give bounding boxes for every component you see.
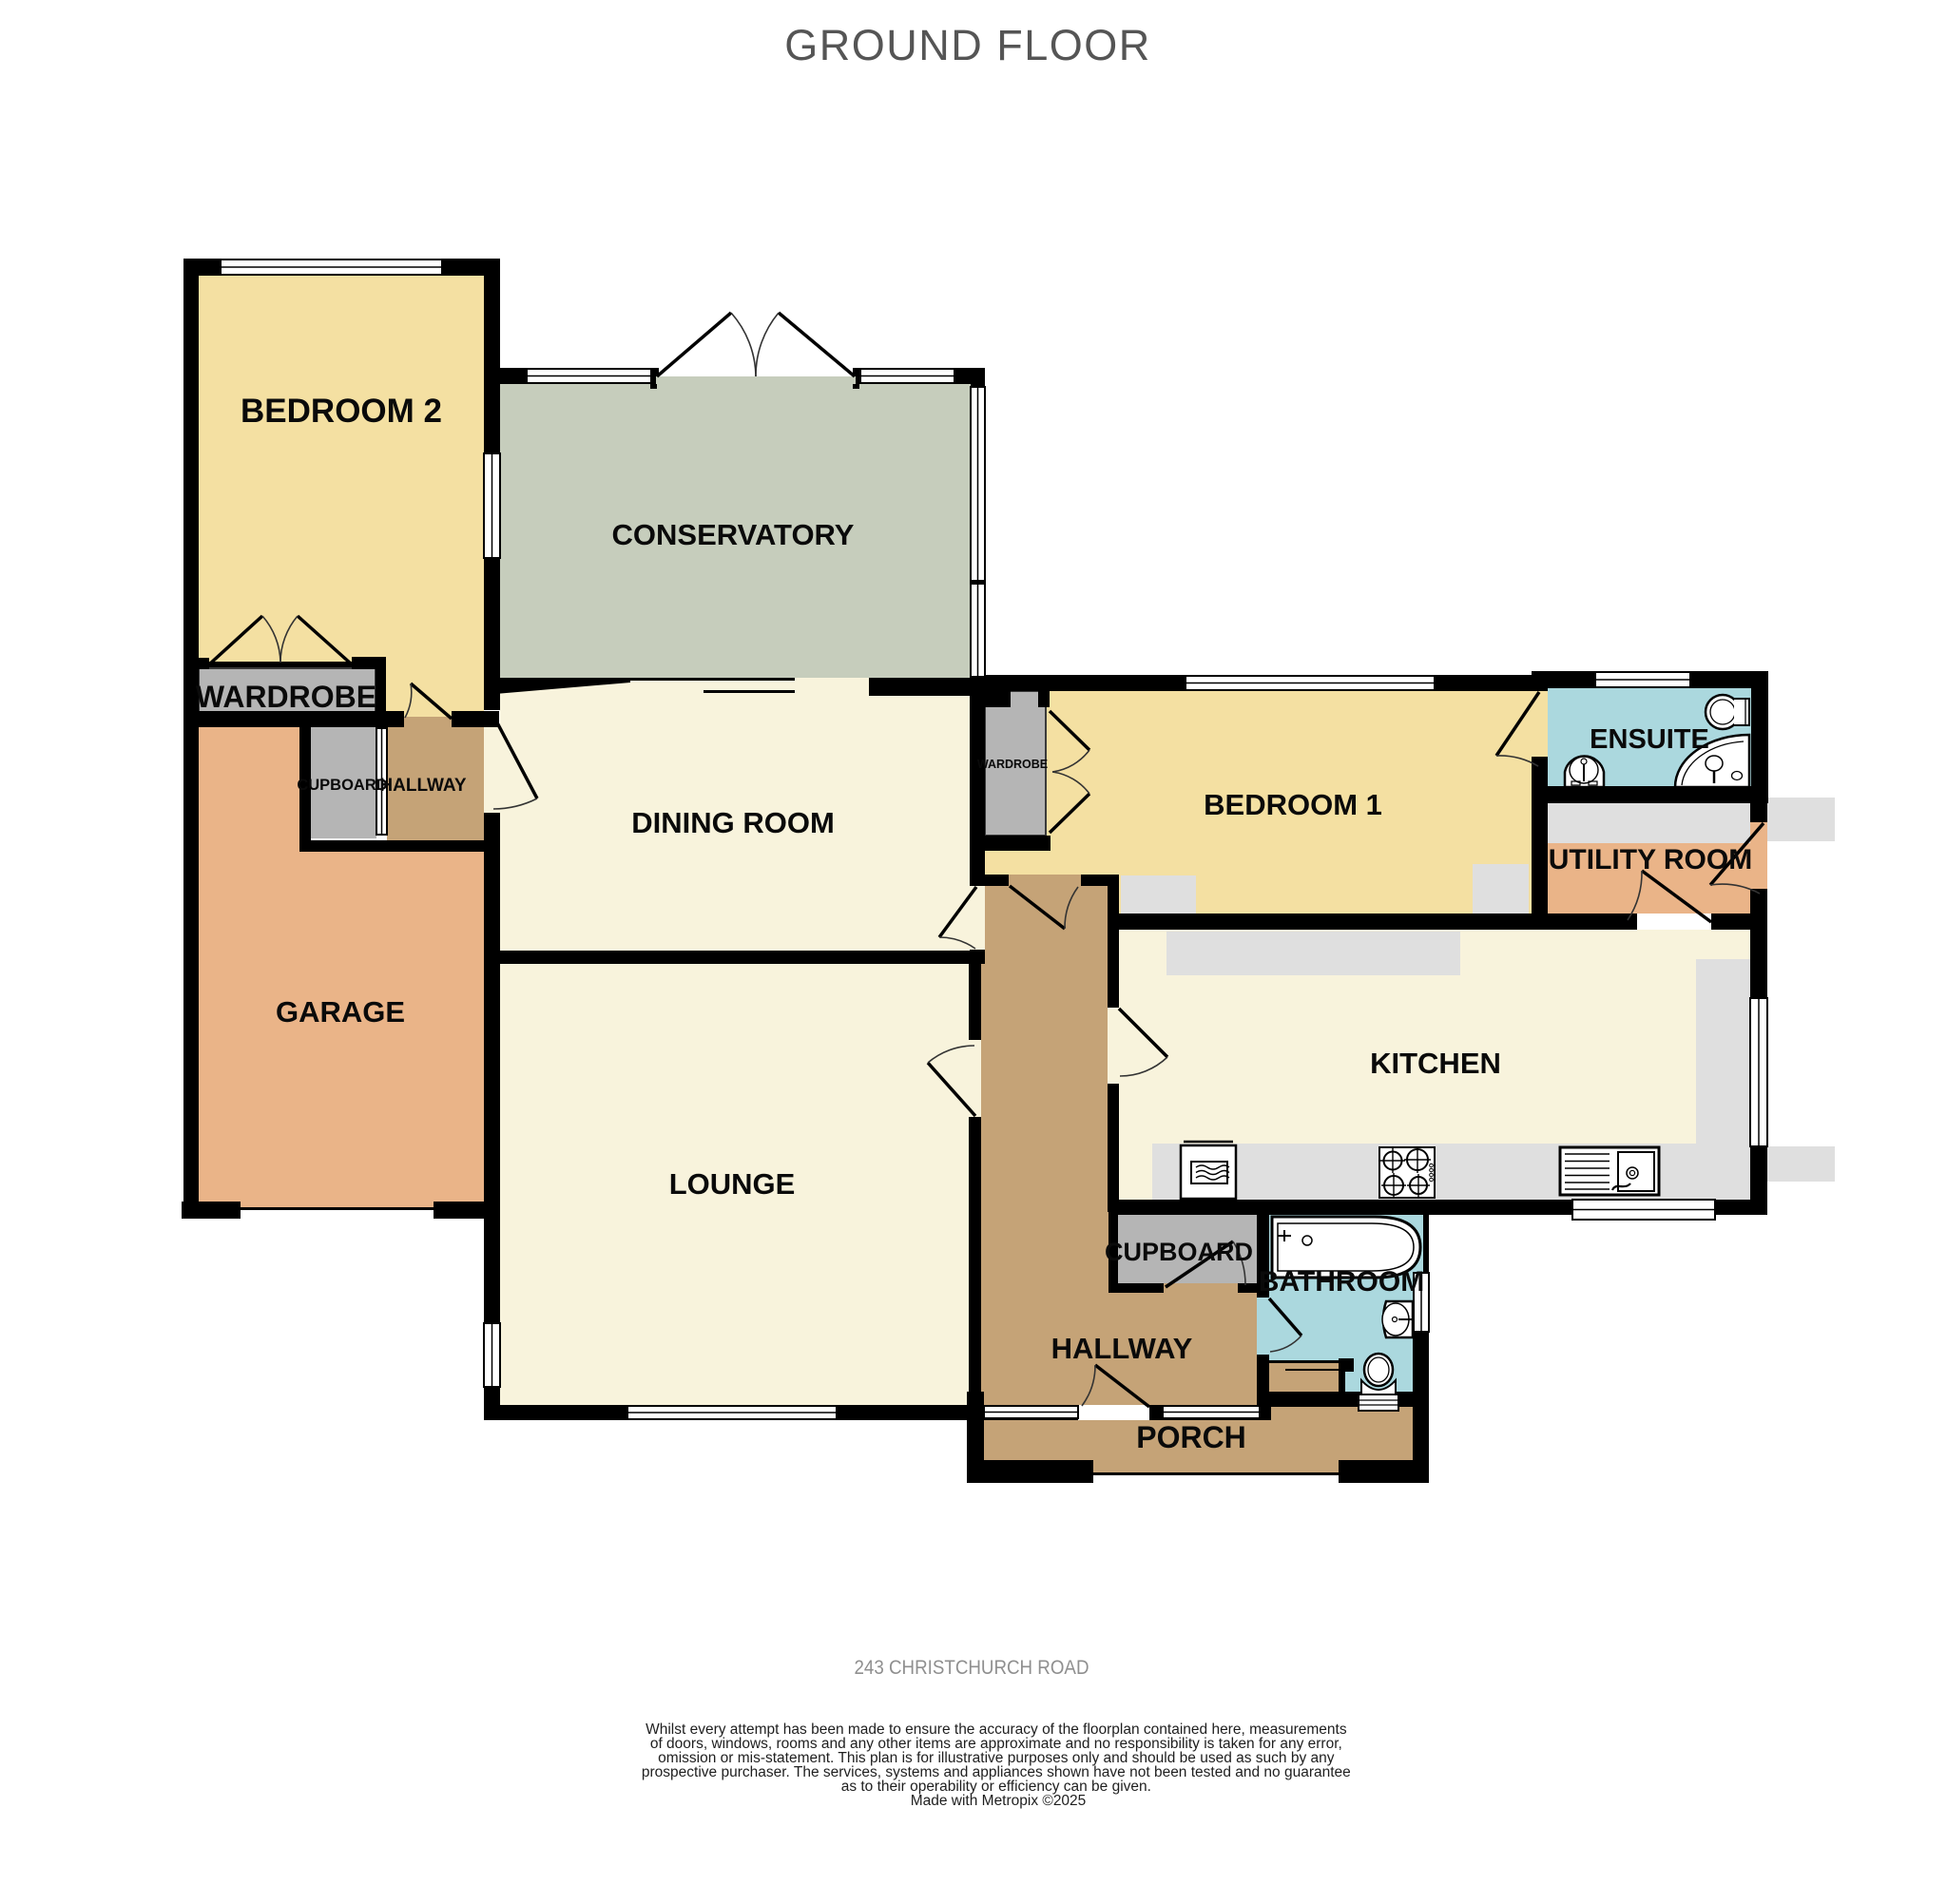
- svg-text:CUPBOARD: CUPBOARD: [1105, 1238, 1253, 1266]
- svg-text:LOUNGE: LOUNGE: [669, 1167, 796, 1201]
- svg-text:DINING ROOM: DINING ROOM: [631, 806, 835, 839]
- svg-text:BEDROOM 1: BEDROOM 1: [1204, 788, 1382, 821]
- svg-text:243 CHRISTCHURCH ROAD: 243 CHRISTCHURCH ROAD: [855, 1657, 1089, 1679]
- svg-text:GARAGE: GARAGE: [276, 995, 405, 1029]
- svg-text:GROUND FLOOR: GROUND FLOOR: [784, 21, 1151, 69]
- svg-text:KITCHEN: KITCHEN: [1370, 1047, 1501, 1080]
- svg-text:HALLWAY: HALLWAY: [379, 776, 466, 796]
- svg-text:UTILITY ROOM: UTILITY ROOM: [1549, 844, 1752, 875]
- svg-text:CUPBOARD: CUPBOARD: [297, 777, 387, 794]
- svg-text:WARDROBE: WARDROBE: [196, 680, 376, 714]
- svg-text:ENSUITE: ENSUITE: [1590, 724, 1709, 755]
- svg-text:WARDROBE: WARDROBE: [977, 758, 1048, 771]
- svg-text:BATHROOM: BATHROOM: [1259, 1266, 1424, 1298]
- svg-text:BEDROOM 2: BEDROOM 2: [241, 393, 442, 430]
- svg-text:PORCH: PORCH: [1136, 1420, 1246, 1454]
- svg-text:HALLWAY: HALLWAY: [1051, 1332, 1193, 1365]
- svg-text:CONSERVATORY: CONSERVATORY: [612, 518, 855, 551]
